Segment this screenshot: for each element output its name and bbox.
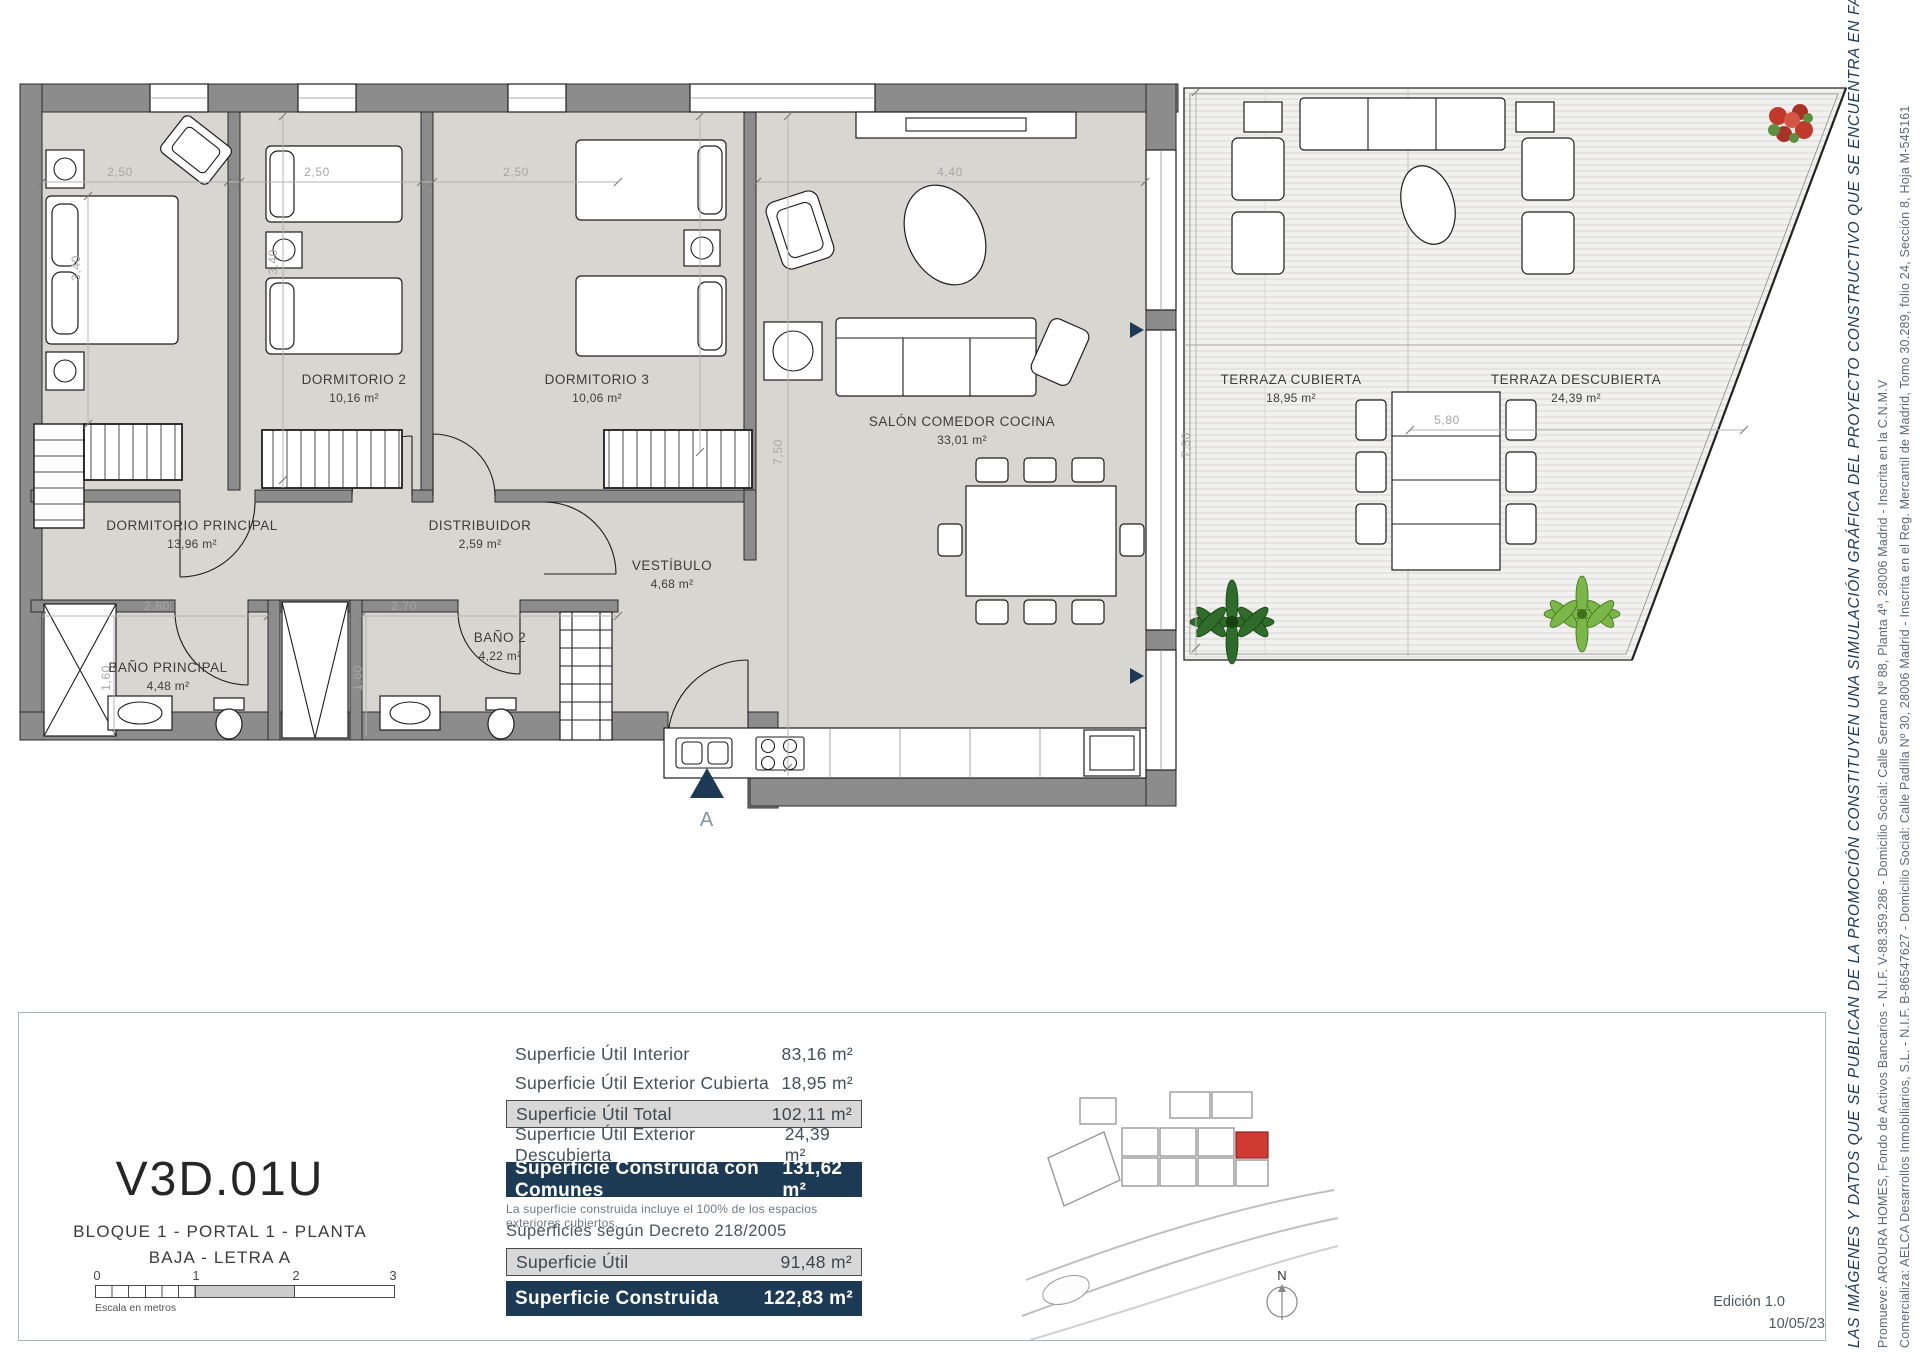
room-area: 13,96 m²: [167, 537, 217, 551]
room-area: 4,22 m²: [479, 649, 522, 663]
room-name: BAÑO 2: [474, 630, 527, 645]
dim-label: 2,50: [503, 165, 529, 179]
dim-label: 2,50: [304, 165, 330, 179]
room-area: 10,06 m²: [572, 391, 622, 405]
edition-label: Edición 1.0: [1600, 1294, 1785, 1310]
table-row: Superficie Útil Interior 83,16 m²: [506, 1042, 862, 1066]
scale-tick-1: 1: [192, 1268, 199, 1283]
north-arrow: N: [1267, 1268, 1297, 1320]
row-value: 102,11 m²: [772, 1104, 852, 1125]
dim-label: 3,40: [266, 249, 280, 275]
room-area: 18,95 m²: [1266, 391, 1316, 405]
room-name: DORMITORIO 2: [302, 372, 407, 387]
row-value: 83,16 m²: [782, 1044, 853, 1065]
room-area: 10,16 m²: [329, 391, 379, 405]
floor-plan: 2,50 2,50 2,50 3,40 3,40 4,40 7,50 7,50 …: [0, 0, 1920, 840]
entrance-label: A: [700, 809, 714, 831]
dim-label: 3,40: [69, 255, 83, 281]
table-row-highlight-navy: Superficie Construida 122,83 m²: [506, 1281, 862, 1316]
scale-tick-3: 3: [389, 1268, 396, 1283]
table-row: Superficie Útil Exterior Descubierta 24,…: [506, 1133, 862, 1157]
scale-bar-graphic: [95, 1285, 395, 1298]
title-block: V3D.01U BLOQUE 1 - PORTAL 1 - PLANTA BAJ…: [60, 1152, 380, 1270]
table-row-highlight-navy: Superficie Construida con Comunes 131,62…: [506, 1162, 862, 1197]
row-label: Superficie Construida con Comunes: [515, 1158, 782, 1202]
dim-label: 2,70: [391, 599, 417, 613]
dim-label: 1,60: [351, 665, 365, 691]
scale-tick-0: 0: [93, 1268, 100, 1283]
room-name: DORMITORIO PRINCIPAL: [106, 518, 278, 533]
row-value: 131,62 m²: [782, 1158, 853, 1202]
legal-disclaimer: LAS IMÁGENES Y DATOS QUE SE PUBLICAN DE …: [1846, 0, 1864, 1348]
dim-label: 4,40: [937, 165, 963, 179]
areas-table: Superficie Útil Interior 83,16 m² Superf…: [506, 1042, 862, 1230]
room-name: SALÓN COMEDOR COCINA: [869, 414, 1055, 429]
room-name: VESTÍBULO: [632, 558, 712, 573]
unit-subtitle-line1: BLOQUE 1 - PORTAL 1 - PLANTA: [60, 1219, 380, 1245]
decreto-table: Superficies según Decreto 218/2005 Super…: [506, 1222, 862, 1321]
room-name: TERRAZA CUBIERTA: [1220, 372, 1361, 387]
decreto-title: Superficies según Decreto 218/2005: [506, 1222, 862, 1241]
row-label: Superficie Útil: [516, 1252, 628, 1273]
legal-promoter: Promueve: AROURA HOMES, Fondo de Activos…: [1876, 380, 1890, 1348]
room-name: BAÑO PRINCIPAL: [108, 660, 227, 675]
room-name: TERRAZA DESCUBIERTA: [1491, 372, 1661, 387]
north-label: N: [1277, 1268, 1286, 1283]
dim-label: 7,50: [1179, 432, 1193, 458]
room-area: 24,39 m²: [1551, 391, 1601, 405]
legal-marketer: Comercializa: AELCA Desarrollos Inmobili…: [1898, 105, 1912, 1348]
plan-sheet: 2,50 2,50 2,50 3,40 3,40 4,40 7,50 7,50 …: [0, 0, 1920, 1357]
unit-subtitle-line2: BAJA - LETRA A: [60, 1245, 380, 1271]
site-key-map: N: [1020, 1040, 1340, 1340]
row-label: Superficie Útil Exterior Cubierta: [515, 1073, 769, 1094]
highlighted-unit: [1236, 1132, 1268, 1158]
dim-label: 7,50: [771, 439, 785, 465]
unit-code: V3D.01U: [60, 1152, 380, 1207]
table-row: Superficie Útil Exterior Cubierta 18,95 …: [506, 1071, 862, 1095]
room-area: 33,01 m²: [937, 433, 987, 447]
row-label: Superficie Construida: [515, 1288, 719, 1310]
scale-caption: Escala en metros: [95, 1302, 395, 1314]
row-value: 122,83 m²: [764, 1288, 853, 1310]
scale-tick-2: 2: [292, 1268, 299, 1283]
row-label: Superficie Útil Total: [516, 1104, 672, 1125]
scale-bar: 0 1 2 3 Escala en metros: [95, 1268, 395, 1314]
room-name: DISTRIBUIDOR: [429, 518, 532, 533]
dim-label: 2,80: [144, 599, 170, 613]
room-area: 2,59 m²: [459, 537, 502, 551]
table-row-highlight-gray: Superficie Útil 91,48 m²: [506, 1248, 862, 1276]
room-name: DORMITORIO 3: [545, 372, 650, 387]
row-value: 18,95 m²: [782, 1073, 853, 1094]
edition-date: 10/05/23: [1640, 1316, 1825, 1332]
room-area: 4,68 m²: [651, 577, 694, 591]
dim-label: 2,50: [107, 165, 133, 179]
row-value: 91,48 m²: [781, 1252, 852, 1273]
row-label: Superficie Útil Interior: [515, 1044, 689, 1065]
dim-label: 5,80: [1434, 413, 1460, 427]
room-area: 4,48 m²: [147, 679, 190, 693]
